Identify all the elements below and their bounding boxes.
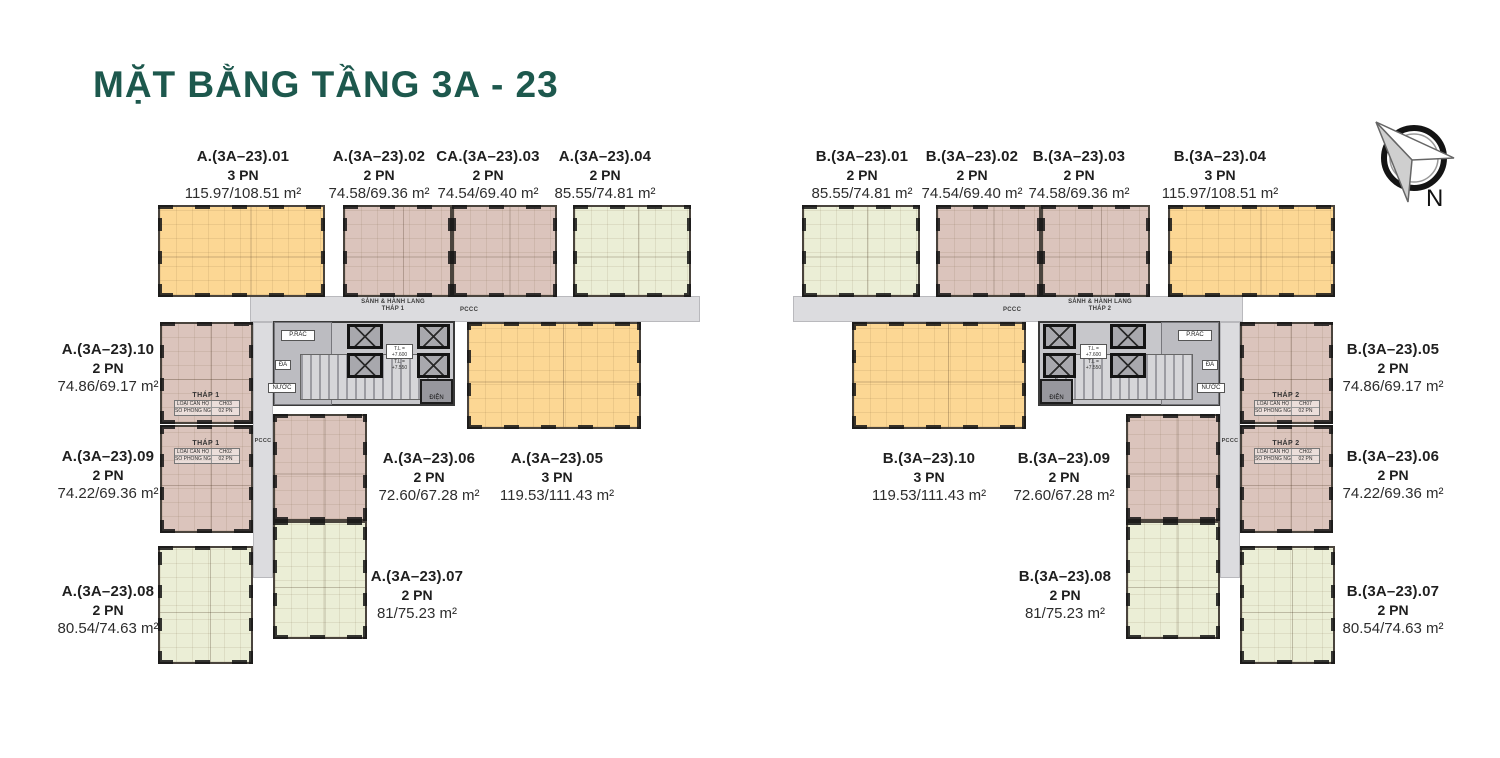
elevator-icon [417,324,450,349]
corridor-a-vertical [253,322,273,578]
elevator-icon [347,324,383,349]
unit-plan-a01[interactable] [158,205,325,297]
corridor-b-label: SẢNH & HÀNH LANGTHÁP 2 [1040,299,1160,313]
unit-plan-a03[interactable] [452,205,557,297]
tower-tag-a10: THÁP 1 LOẠI CĂN HỘCH03 SỐ PHÒNG NGỦ02 PN [174,392,238,416]
unit-label-a09: A.(3A–23).092 PN74.22/69.36 m² [23,448,193,502]
unit-label-b06: B.(3A–23).062 PN74.22/69.36 m² [1308,448,1478,502]
unit-label-b09: B.(3A–23).092 PN72.60/67.28 m² [979,450,1149,504]
unit-label-a10: A.(3A–23).102 PN74.86/69.17 m² [23,341,193,395]
unit-label-b08: B.(3A–23).082 PN81/75.23 m² [980,568,1150,622]
core-b-da-label: ĐA [1202,360,1218,370]
compass-n-label: N [1426,185,1443,212]
floor-plan-page: MẶT BẰNG TẦNG 3A - 23 N ĐIỆN P.RÁC ĐA NƯ… [0,0,1500,758]
unit-label-a07: A.(3A–23).072 PN81/75.23 m² [332,568,502,622]
elevator-icon [1043,353,1076,378]
elevator-icon [417,353,450,378]
core-a-trash-room-label: P.RÁC [281,330,315,341]
corridor-b-vertical [1220,322,1240,578]
unit-plan-b04[interactable] [1168,205,1335,297]
core-b-electric-room: ĐIỆN [1040,379,1073,404]
unit-label-b05: B.(3A–23).052 PN74.86/69.17 m² [1308,341,1478,395]
core-b-trash-room-label: P.RÁC [1178,330,1212,341]
tower-tag-b05: THÁP 2 LOẠI CĂN HỘCH07 SỐ PHÒNG NGỦ02 PN [1254,392,1318,416]
core-a-electric-room: ĐIỆN [420,379,453,404]
unit-label-a05: A.(3A–23).053 PN119.53/111.43 m² [472,450,642,504]
corridor-a-label: SẢNH & HÀNH LANGTHÁP 1 [333,299,453,313]
unit-plan-a05[interactable] [467,322,641,429]
core-b-level-note: T.L = +7.600T.L = +7.550 [1080,344,1107,359]
unit-plan-b02[interactable] [936,205,1041,297]
corridor-b-pccc-label: PCCC [1003,307,1021,313]
elevator-icon [1110,353,1146,378]
unit-label-a04: A.(3A–23).042 PN85.55/74.81 m² [520,148,690,202]
unit-plan-a04[interactable] [573,205,691,297]
unit-label-a08: A.(3A–23).082 PN80.54/74.63 m² [23,583,193,637]
core-a-water-label: NƯỚC [268,383,296,393]
elevator-icon [1043,324,1076,349]
unit-plan-b01[interactable] [802,205,920,297]
unit-label-b04: B.(3A–23).043 PN115.97/108.51 m² [1135,148,1305,202]
page-title: MẶT BẰNG TẦNG 3A - 23 [93,64,559,106]
elevator-icon [1110,324,1146,349]
elevator-icon [347,353,383,378]
unit-label-b07: B.(3A–23).072 PN80.54/74.63 m² [1308,583,1478,637]
core-b-water-label: NƯỚC [1197,383,1225,393]
core-a-da-label: ĐA [275,360,291,370]
shaft-b-pccc-label: PCCC [1219,438,1241,444]
unit-plan-b03[interactable] [1041,205,1150,297]
unit-plan-a02[interactable] [343,205,452,297]
shaft-a-pccc-label: PCCC [252,438,274,444]
corridor-a-pccc-label: PCCC [460,307,478,313]
core-a-level-note: T.L = +7.600T.L = +7.550 [386,344,413,359]
unit-plan-b10[interactable] [852,322,1026,429]
compass-north-icon: N [1362,108,1474,220]
